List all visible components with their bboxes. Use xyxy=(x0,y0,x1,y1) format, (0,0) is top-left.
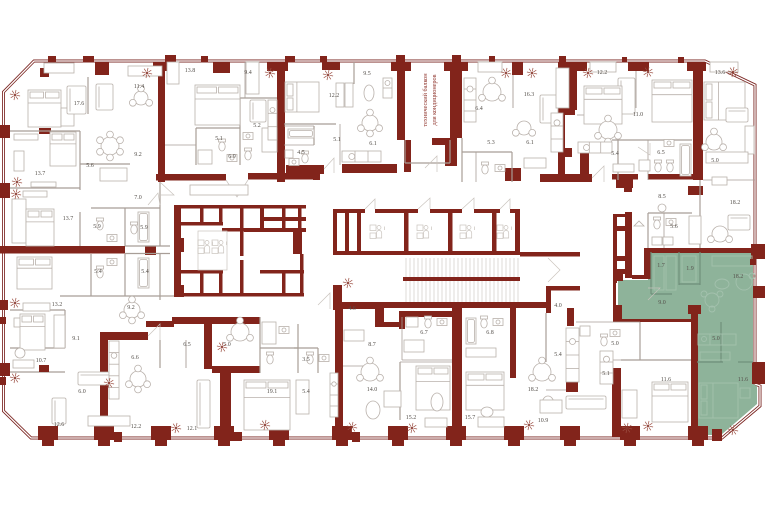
svg-text:6.5: 6.5 xyxy=(183,342,191,348)
svg-text:12.6: 12.6 xyxy=(54,422,65,428)
svg-text:5.4: 5.4 xyxy=(611,151,619,157)
svg-text:6.1: 6.1 xyxy=(526,140,534,146)
svg-text:5.4: 5.4 xyxy=(141,269,149,275)
svg-text:5.4: 5.4 xyxy=(94,269,102,275)
svg-text:5.0: 5.0 xyxy=(712,336,720,342)
svg-text:11.0: 11.0 xyxy=(633,112,643,118)
svg-text:3.5: 3.5 xyxy=(302,357,310,363)
svg-text:1.9: 1.9 xyxy=(686,266,694,272)
svg-text:технический балкон: технический балкон xyxy=(422,73,429,127)
svg-text:6.9: 6.9 xyxy=(228,154,236,160)
svg-text:4.0: 4.0 xyxy=(554,303,562,309)
svg-text:6.5: 6.5 xyxy=(657,150,665,156)
svg-text:7.0: 7.0 xyxy=(134,195,142,201)
svg-text:18.2: 18.2 xyxy=(733,274,744,280)
svg-text:5.9: 5.9 xyxy=(140,225,148,231)
svg-text:17.6: 17.6 xyxy=(74,101,85,107)
svg-text:6.8: 6.8 xyxy=(486,330,494,336)
svg-text:8.7: 8.7 xyxy=(368,342,376,348)
svg-text:4.5: 4.5 xyxy=(297,150,305,156)
svg-text:13.2: 13.2 xyxy=(52,302,63,308)
svg-text:5.1: 5.1 xyxy=(602,371,610,377)
svg-text:11.4: 11.4 xyxy=(134,84,144,90)
svg-text:5.1: 5.1 xyxy=(215,136,223,142)
svg-text:16.3: 16.3 xyxy=(524,92,535,98)
svg-text:9.1: 9.1 xyxy=(72,336,80,342)
svg-text:8.5: 8.5 xyxy=(658,194,666,200)
svg-text:12.2: 12.2 xyxy=(329,93,340,99)
svg-text:19.1: 19.1 xyxy=(267,389,278,395)
svg-text:9.2: 9.2 xyxy=(127,305,135,311)
svg-text:18.2: 18.2 xyxy=(528,387,539,393)
svg-text:5.4: 5.4 xyxy=(554,352,562,358)
svg-text:12.2: 12.2 xyxy=(597,70,608,76)
svg-text:14.0: 14.0 xyxy=(367,387,378,393)
svg-text:13.8: 13.8 xyxy=(185,68,196,74)
svg-text:13.6: 13.6 xyxy=(715,70,726,76)
svg-text:10.9: 10.9 xyxy=(538,418,549,424)
svg-text:5.1: 5.1 xyxy=(333,137,341,143)
svg-text:6.0: 6.0 xyxy=(78,389,86,395)
svg-text:4.6: 4.6 xyxy=(348,306,356,312)
svg-text:5.0: 5.0 xyxy=(611,341,619,347)
svg-text:18.2: 18.2 xyxy=(730,200,741,206)
svg-text:15.7: 15.7 xyxy=(465,415,476,421)
svg-text:6.7: 6.7 xyxy=(420,330,428,336)
svg-text:9.2: 9.2 xyxy=(134,152,142,158)
svg-text:9.5: 9.5 xyxy=(363,71,371,77)
svg-text:11.6: 11.6 xyxy=(661,377,671,383)
svg-text:13.7: 13.7 xyxy=(63,216,74,222)
svg-text:6.4: 6.4 xyxy=(475,106,483,112)
svg-text:5.0: 5.0 xyxy=(711,158,719,164)
svg-text:1.7: 1.7 xyxy=(657,263,665,269)
svg-text:15.2: 15.2 xyxy=(406,415,417,421)
svg-text:5.6: 5.6 xyxy=(86,163,94,169)
svg-text:5.0: 5.0 xyxy=(223,342,231,348)
svg-text:12.2: 12.2 xyxy=(131,424,142,430)
svg-text:5.4: 5.4 xyxy=(302,389,310,395)
svg-text:11.6: 11.6 xyxy=(738,377,748,383)
svg-text:5.3: 5.3 xyxy=(487,140,495,146)
svg-text:13.7: 13.7 xyxy=(35,171,46,177)
svg-text:10.7: 10.7 xyxy=(36,358,47,364)
svg-text:12.1: 12.1 xyxy=(187,426,198,432)
svg-text:6.1: 6.1 xyxy=(369,141,377,147)
svg-text:9.0: 9.0 xyxy=(658,300,666,306)
svg-text:5.6: 5.6 xyxy=(670,224,678,230)
svg-text:6.6: 6.6 xyxy=(131,355,139,361)
svg-text:5.2: 5.2 xyxy=(253,123,261,129)
svg-text:для кондиционеров: для кондиционеров xyxy=(431,74,438,125)
svg-text:9.4: 9.4 xyxy=(244,70,252,76)
svg-text:5.9: 5.9 xyxy=(93,224,101,230)
